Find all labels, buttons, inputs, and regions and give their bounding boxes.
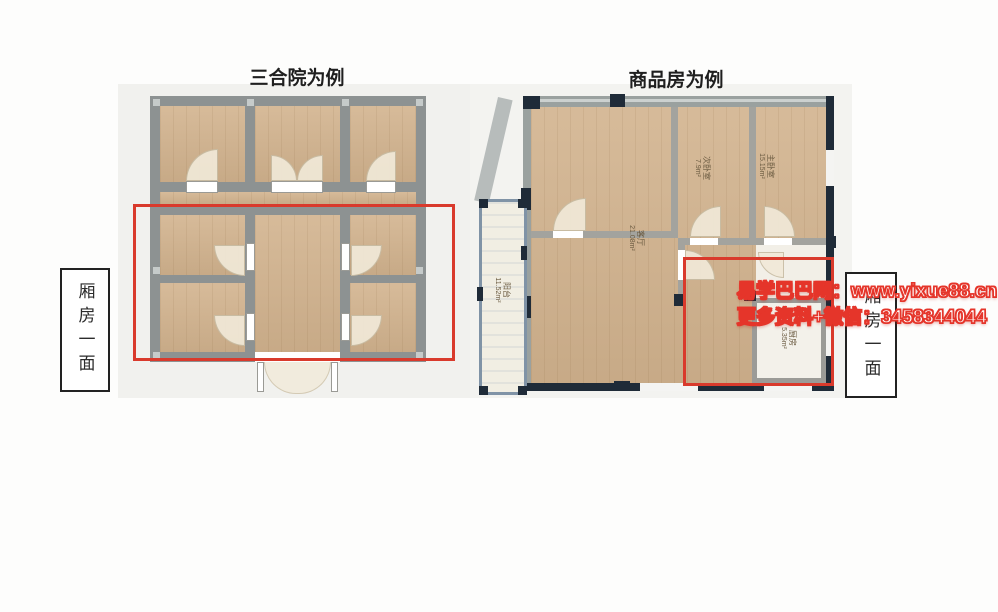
door-opening — [553, 231, 583, 238]
balcony-corner-post — [479, 199, 488, 208]
wall-joint — [416, 99, 423, 106]
watermark-line-1: 易学巴巴网：www.yixue88.cn — [737, 279, 998, 305]
wall-joint — [247, 99, 254, 106]
left-side-label-box: 厢房一面 — [60, 268, 110, 392]
door-opening — [690, 238, 718, 245]
wall-column — [614, 381, 630, 391]
room-label-balcony: 阳台 11.52m² — [487, 260, 517, 320]
wall-column — [523, 96, 540, 109]
double-door-leaf — [271, 181, 323, 193]
interior-wall — [671, 107, 678, 238]
courtyard-top-room-2 — [255, 106, 340, 182]
door-leaf — [366, 181, 396, 193]
balcony-corner-post — [518, 386, 527, 395]
door-opening — [764, 238, 792, 245]
left-highlight-box — [133, 204, 455, 361]
wall-column — [826, 236, 836, 248]
watermark-line-2: 更多资料+微信：3458344044 — [737, 305, 998, 331]
wall-joint — [342, 99, 349, 106]
room-label-bedroom-small: 次卧室 7.9m² — [687, 138, 717, 198]
left-side-label: 厢房一面 — [73, 282, 98, 378]
gate-door-leaf — [331, 362, 338, 392]
floor-plan-comparison-image: 三合院为例 厢房一面 商品房为例 — [0, 0, 998, 612]
room-label-living: 客厅 21.08m² — [621, 208, 651, 268]
room-label-bedroom-master: 主卧室 15.15m² — [751, 136, 781, 196]
watermark: 易学巴巴网：www.yixue88.cn 更多资料+微信：3458344044 — [737, 279, 998, 331]
left-plan-title: 三合院为例 — [207, 63, 387, 89]
gate-door-leaf — [257, 362, 264, 392]
balcony-corner-post — [518, 199, 527, 208]
apartment-top-wall-window-band — [527, 99, 830, 102]
balcony-wall-post — [521, 246, 527, 260]
wall-column — [610, 94, 625, 107]
balcony-corner-post — [479, 386, 488, 395]
door-leaf — [186, 181, 218, 193]
window-opening — [826, 150, 834, 186]
wall-joint — [153, 99, 160, 106]
right-plan-title: 商品房为例 — [586, 65, 766, 91]
balcony-wall-post — [477, 287, 483, 301]
